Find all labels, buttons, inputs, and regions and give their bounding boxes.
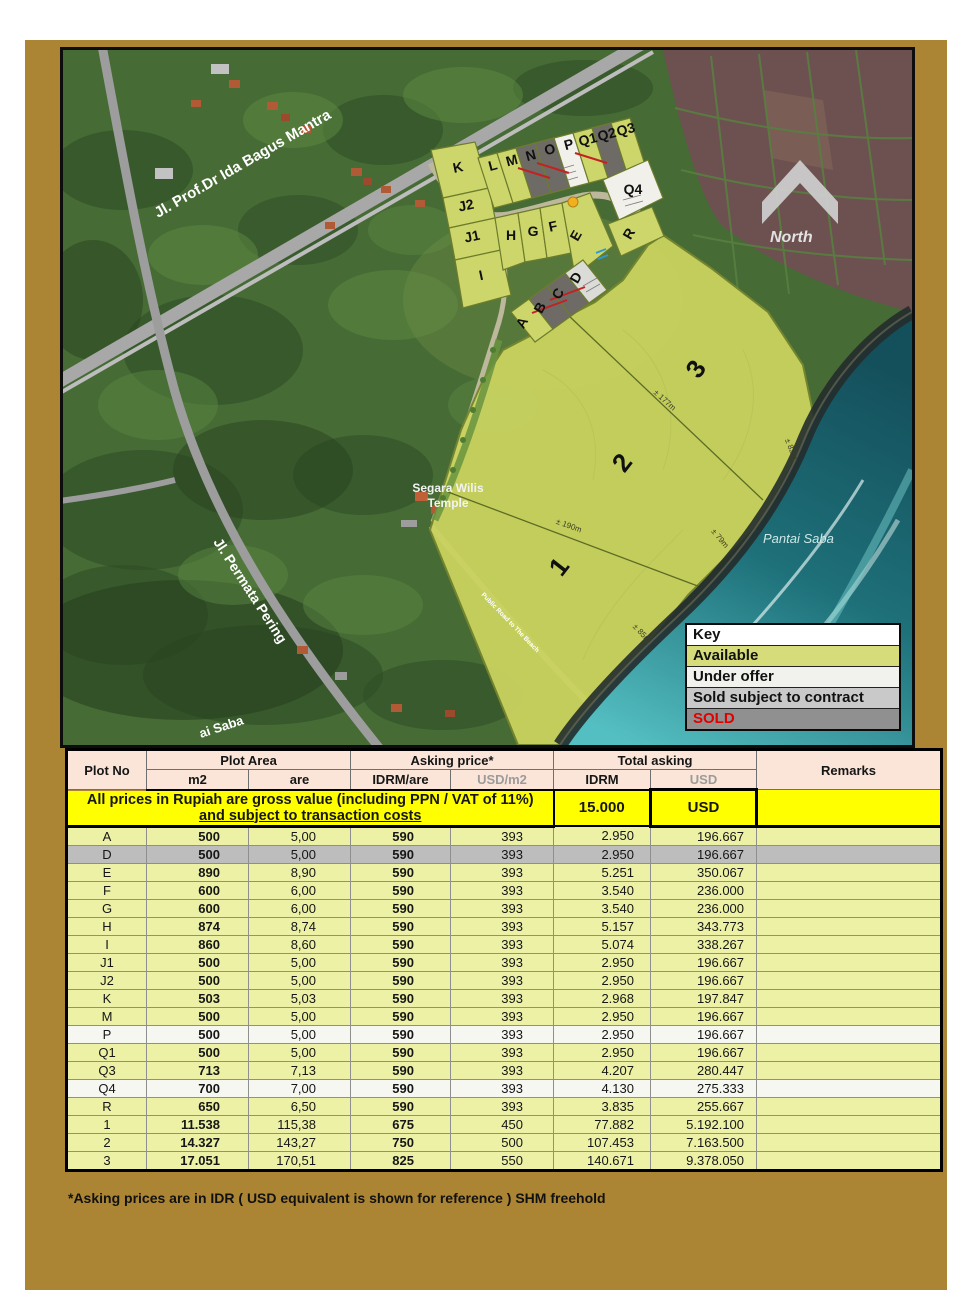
cell-usd: 255.667 xyxy=(651,1097,757,1115)
cell-are: 5,00 xyxy=(249,1043,351,1061)
marker-dot xyxy=(568,197,578,207)
cell-idrm_are: 590 xyxy=(351,989,451,1007)
cell-usd_m2: 393 xyxy=(451,845,554,863)
key-item: Available xyxy=(687,646,899,667)
cell-remarks xyxy=(757,1043,942,1061)
table-row: 111.538115,3867545077.8825.192.100 xyxy=(67,1115,942,1133)
notice-line1: All prices in Rupiah are gross value (in… xyxy=(69,792,552,808)
beach-label: Pantai Saba xyxy=(763,531,834,546)
cell-remarks xyxy=(757,935,942,953)
cell-idrm_are: 590 xyxy=(351,917,451,935)
cell-idrm_are: 675 xyxy=(351,1115,451,1133)
cell-idrm: 2.950 xyxy=(554,1025,651,1043)
cell-are: 8,74 xyxy=(249,917,351,935)
svg-text:H: H xyxy=(506,227,516,243)
cell-are: 8,90 xyxy=(249,863,351,881)
cell-plot: A xyxy=(67,826,147,845)
cell-plot: 2 xyxy=(67,1133,147,1151)
cell-idrm: 2.950 xyxy=(554,826,651,845)
cell-idrm_are: 590 xyxy=(351,1007,451,1025)
cell-idrm_are: 590 xyxy=(351,1079,451,1097)
cell-plot: F xyxy=(67,881,147,899)
cell-m2: 650 xyxy=(147,1097,249,1115)
cell-are: 115,38 xyxy=(249,1115,351,1133)
cell-idrm_are: 590 xyxy=(351,971,451,989)
table-header: Plot No Plot Area Asking price* Total as… xyxy=(67,750,942,790)
cell-idrm: 5.074 xyxy=(554,935,651,953)
table-row: Q37137,135903934.207280.447 xyxy=(67,1061,942,1079)
cell-are: 5,00 xyxy=(249,953,351,971)
cell-m2: 500 xyxy=(147,1007,249,1025)
key-item: Under offer xyxy=(687,667,899,688)
cell-idrm_are: 590 xyxy=(351,935,451,953)
svg-text:G: G xyxy=(528,223,539,239)
cell-plot: Q4 xyxy=(67,1079,147,1097)
table-row: E8908,905903935.251350.067 xyxy=(67,863,942,881)
cell-remarks xyxy=(757,1079,942,1097)
cell-usd: 9.378.050 xyxy=(651,1151,757,1170)
cell-idrm: 5.157 xyxy=(554,917,651,935)
table-row: J15005,005903932.950196.667 xyxy=(67,953,942,971)
site-map: North Jl. Prof.Dr Ida Bagus Mantra Jl. P… xyxy=(60,47,915,748)
cell-idrm_are: 590 xyxy=(351,826,451,845)
cell-idrm: 3.835 xyxy=(554,1097,651,1115)
cell-usd_m2: 393 xyxy=(451,989,554,1007)
cell-idrm: 2.950 xyxy=(554,845,651,863)
cell-m2: 500 xyxy=(147,826,249,845)
cell-idrm: 3.540 xyxy=(554,881,651,899)
cell-usd_m2: 393 xyxy=(451,1043,554,1061)
cell-idrm: 3.540 xyxy=(554,899,651,917)
table-row: H8748,745903935.157343.773 xyxy=(67,917,942,935)
cell-remarks xyxy=(757,971,942,989)
cell-idrm: 4.130 xyxy=(554,1079,651,1097)
col-are: are xyxy=(249,770,351,790)
exchange-rate: 15.000 xyxy=(554,790,651,827)
cell-m2: 17.051 xyxy=(147,1151,249,1170)
notice-text: All prices in Rupiah are gross value (in… xyxy=(67,790,554,827)
col-idrm: IDRM xyxy=(554,770,651,790)
cell-remarks xyxy=(757,1115,942,1133)
cell-plot: Q1 xyxy=(67,1043,147,1061)
cell-are: 7,13 xyxy=(249,1061,351,1079)
cell-usd_m2: 393 xyxy=(451,1079,554,1097)
cell-m2: 860 xyxy=(147,935,249,953)
cell-idrm_are: 825 xyxy=(351,1151,451,1170)
table-row: J25005,005903932.950196.667 xyxy=(67,971,942,989)
cell-are: 5,00 xyxy=(249,826,351,845)
cell-idrm_are: 590 xyxy=(351,899,451,917)
cell-usd: 7.163.500 xyxy=(651,1133,757,1151)
cell-usd_m2: 393 xyxy=(451,826,554,845)
cell-usd_m2: 393 xyxy=(451,881,554,899)
table-row: Q15005,005903932.950196.667 xyxy=(67,1043,942,1061)
cell-usd_m2: 393 xyxy=(451,917,554,935)
temple-label-1: Segara Wilis xyxy=(412,481,484,495)
table-row: G6006,005903933.540236.000 xyxy=(67,899,942,917)
cell-remarks xyxy=(757,953,942,971)
cell-idrm: 2.950 xyxy=(554,1043,651,1061)
cell-remarks xyxy=(757,1025,942,1043)
table-row: A5005,005903932.950196.667 xyxy=(67,826,942,845)
cell-are: 7,00 xyxy=(249,1079,351,1097)
table-row: F6006,005903933.540236.000 xyxy=(67,881,942,899)
cell-remarks xyxy=(757,989,942,1007)
cell-plot: 1 xyxy=(67,1115,147,1133)
cell-usd_m2: 393 xyxy=(451,1061,554,1079)
cell-usd: 196.667 xyxy=(651,1043,757,1061)
cell-usd_m2: 450 xyxy=(451,1115,554,1133)
footnote: *Asking prices are in IDR ( USD equivale… xyxy=(68,1190,606,1206)
cell-m2: 890 xyxy=(147,863,249,881)
cell-idrm_are: 590 xyxy=(351,881,451,899)
cell-plot: J2 xyxy=(67,971,147,989)
cell-usd: 197.847 xyxy=(651,989,757,1007)
cell-idrm: 77.882 xyxy=(554,1115,651,1133)
cell-usd: 196.667 xyxy=(651,845,757,863)
cell-remarks xyxy=(757,845,942,863)
cell-idrm_are: 750 xyxy=(351,1133,451,1151)
col-plot-no: Plot No xyxy=(67,750,147,790)
cell-usd: 236.000 xyxy=(651,899,757,917)
notice-filler xyxy=(757,790,942,827)
cell-plot: G xyxy=(67,899,147,917)
cell-m2: 500 xyxy=(147,971,249,989)
cell-m2: 713 xyxy=(147,1061,249,1079)
cell-usd: 196.667 xyxy=(651,971,757,989)
cell-idrm: 2.950 xyxy=(554,953,651,971)
cell-m2: 600 xyxy=(147,899,249,917)
table-row: 214.327143,27750500107.4537.163.500 xyxy=(67,1133,942,1151)
cell-are: 5,03 xyxy=(249,989,351,1007)
cell-are: 143,27 xyxy=(249,1133,351,1151)
cell-m2: 14.327 xyxy=(147,1133,249,1151)
cell-m2: 503 xyxy=(147,989,249,1007)
cell-m2: 500 xyxy=(147,1025,249,1043)
cell-usd: 236.000 xyxy=(651,881,757,899)
cell-plot: H xyxy=(67,917,147,935)
cell-plot: M xyxy=(67,1007,147,1025)
cell-are: 6,50 xyxy=(249,1097,351,1115)
cell-usd: 275.333 xyxy=(651,1079,757,1097)
table-row: D5005,005903932.950196.667 xyxy=(67,845,942,863)
cell-usd_m2: 393 xyxy=(451,1007,554,1025)
cell-are: 5,00 xyxy=(249,971,351,989)
cell-usd_m2: 500 xyxy=(451,1133,554,1151)
cell-are: 5,00 xyxy=(249,845,351,863)
cell-idrm_are: 590 xyxy=(351,863,451,881)
cell-usd: 5.192.100 xyxy=(651,1115,757,1133)
cell-m2: 11.538 xyxy=(147,1115,249,1133)
cell-remarks xyxy=(757,1151,942,1170)
col-usd-m2: USD/m2 xyxy=(451,770,554,790)
table-row: K5035,035903932.968197.847 xyxy=(67,989,942,1007)
cell-idrm_are: 590 xyxy=(351,1061,451,1079)
cell-are: 6,00 xyxy=(249,881,351,899)
cell-are: 170,51 xyxy=(249,1151,351,1170)
cell-remarks xyxy=(757,917,942,935)
cell-remarks xyxy=(757,1133,942,1151)
cell-idrm_are: 590 xyxy=(351,953,451,971)
cell-usd_m2: 393 xyxy=(451,863,554,881)
cell-usd: 196.667 xyxy=(651,953,757,971)
cell-remarks xyxy=(757,826,942,845)
cell-idrm: 2.950 xyxy=(554,1007,651,1025)
cell-are: 5,00 xyxy=(249,1025,351,1043)
table-row: Q47007,005903934.130275.333 xyxy=(67,1079,942,1097)
cell-are: 8,60 xyxy=(249,935,351,953)
table-row: I8608,605903935.074338.267 xyxy=(67,935,942,953)
cell-usd_m2: 550 xyxy=(451,1151,554,1170)
cell-idrm: 2.968 xyxy=(554,989,651,1007)
key-title: Key xyxy=(687,625,899,646)
cell-idrm_are: 590 xyxy=(351,845,451,863)
col-plot-area: Plot Area xyxy=(147,750,351,770)
cell-remarks xyxy=(757,899,942,917)
cell-usd: 350.067 xyxy=(651,863,757,881)
cell-plot: P xyxy=(67,1025,147,1043)
cell-plot: I xyxy=(67,935,147,953)
cell-plot: Q3 xyxy=(67,1061,147,1079)
cell-plot: K xyxy=(67,989,147,1007)
cell-idrm_are: 590 xyxy=(351,1043,451,1061)
col-total-asking: Total asking xyxy=(554,750,757,770)
key-item: Sold subject to contract xyxy=(687,688,899,709)
cell-m2: 700 xyxy=(147,1079,249,1097)
cell-usd: 280.447 xyxy=(651,1061,757,1079)
cell-idrm: 5.251 xyxy=(554,863,651,881)
cell-usd_m2: 393 xyxy=(451,971,554,989)
north-label: North xyxy=(770,229,813,246)
cell-usd_m2: 393 xyxy=(451,953,554,971)
table-row: M5005,005903932.950196.667 xyxy=(67,1007,942,1025)
cell-usd: 343.773 xyxy=(651,917,757,935)
cell-idrm_are: 590 xyxy=(351,1097,451,1115)
cell-m2: 874 xyxy=(147,917,249,935)
price-table: All prices in Rupiah are gross value (in… xyxy=(65,748,943,1172)
cell-usd: 196.667 xyxy=(651,1025,757,1043)
col-idrm-are: IDRM/are xyxy=(351,770,451,790)
cell-are: 5,00 xyxy=(249,1007,351,1025)
cell-m2: 500 xyxy=(147,953,249,971)
cell-usd_m2: 393 xyxy=(451,935,554,953)
cell-plot: R xyxy=(67,1097,147,1115)
cell-usd_m2: 393 xyxy=(451,1097,554,1115)
col-m2: m2 xyxy=(147,770,249,790)
currency-label: USD xyxy=(651,790,757,827)
col-usd: USD xyxy=(651,770,757,790)
col-remarks: Remarks xyxy=(757,750,942,790)
cell-remarks xyxy=(757,1097,942,1115)
cell-usd_m2: 393 xyxy=(451,1025,554,1043)
price-table-body: A5005,005903932.950196.667D5005,00590393… xyxy=(67,826,942,1170)
cell-usd_m2: 393 xyxy=(451,899,554,917)
cell-usd: 196.667 xyxy=(651,826,757,845)
cell-usd: 196.667 xyxy=(651,1007,757,1025)
cell-m2: 500 xyxy=(147,1043,249,1061)
table-row: P5005,005903932.950196.667 xyxy=(67,1025,942,1043)
cell-remarks xyxy=(757,881,942,899)
key-box: Key AvailableUnder offerSold subject to … xyxy=(685,623,901,731)
cell-idrm: 107.453 xyxy=(554,1133,651,1151)
notice-bar: All prices in Rupiah are gross value (in… xyxy=(67,790,942,827)
cell-plot: E xyxy=(67,863,147,881)
cell-idrm_are: 590 xyxy=(351,1025,451,1043)
table-row: 317.051170,51825550140.6719.378.050 xyxy=(67,1151,942,1170)
table-row: R6506,505903933.835255.667 xyxy=(67,1097,942,1115)
cell-plot: D xyxy=(67,845,147,863)
cell-m2: 500 xyxy=(147,845,249,863)
cell-remarks xyxy=(757,1007,942,1025)
cell-idrm: 2.950 xyxy=(554,971,651,989)
cell-remarks xyxy=(757,863,942,881)
cell-idrm: 4.207 xyxy=(554,1061,651,1079)
notice-line2: and subject to transaction costs xyxy=(69,808,552,824)
cell-m2: 600 xyxy=(147,881,249,899)
temple-label-2: Temple xyxy=(427,496,468,510)
cell-plot: J1 xyxy=(67,953,147,971)
col-asking-price: Asking price* xyxy=(351,750,554,770)
cell-are: 6,00 xyxy=(249,899,351,917)
key-item: SOLD xyxy=(687,709,899,729)
cell-usd: 338.267 xyxy=(651,935,757,953)
cell-idrm: 140.671 xyxy=(554,1151,651,1170)
cell-plot: 3 xyxy=(67,1151,147,1170)
cell-remarks xyxy=(757,1061,942,1079)
svg-text:Q4: Q4 xyxy=(624,181,643,197)
